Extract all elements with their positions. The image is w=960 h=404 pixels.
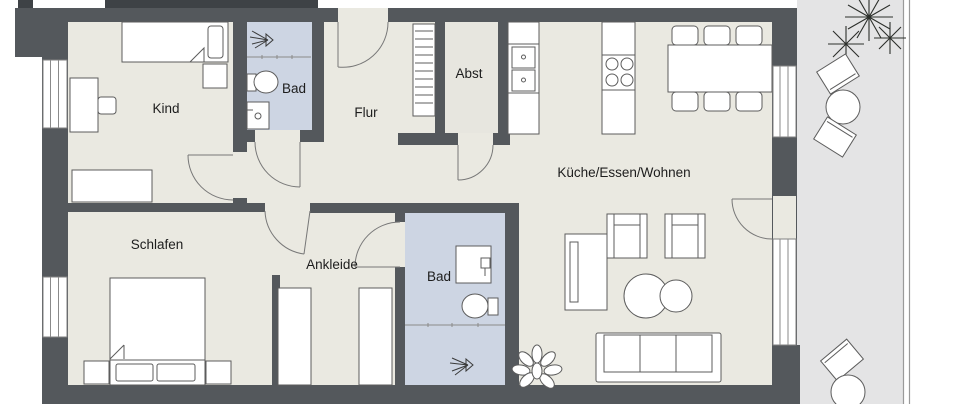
label-bad-top: Bad bbox=[282, 81, 306, 96]
armchair bbox=[607, 214, 647, 258]
toilet-tank bbox=[488, 298, 498, 315]
wall-hall-bad bbox=[310, 203, 519, 213]
terrace-table bbox=[831, 375, 865, 404]
label-ankleide: Ankleide bbox=[306, 257, 358, 272]
terrace-door-opening bbox=[773, 196, 796, 239]
wall-bad-bottom bbox=[233, 130, 255, 142]
wall-ankleide-bad bbox=[395, 213, 405, 222]
dining-chair bbox=[672, 92, 698, 111]
wall-abst-left bbox=[435, 22, 445, 133]
wall-kind-bad bbox=[233, 22, 247, 142]
coffee-table bbox=[660, 280, 692, 312]
neighbor-wall-stub bbox=[18, 0, 33, 8]
left-wall-step bbox=[15, 8, 42, 57]
wardrobe bbox=[359, 288, 392, 385]
wardrobe-shelf bbox=[413, 24, 435, 116]
label-bad-bottom: Bad bbox=[427, 269, 451, 284]
dining-set bbox=[668, 26, 772, 111]
bottom-wall bbox=[42, 385, 800, 404]
floor-plan: Kind Bad Flur Abst Küche/Essen/Wohnen Sc… bbox=[0, 0, 960, 404]
kind-bed-pillow bbox=[208, 26, 223, 58]
washbasin bbox=[456, 246, 491, 283]
wall-hall-bedrooms bbox=[68, 203, 265, 212]
neighbor-wall-band bbox=[105, 0, 318, 8]
label-schlafen: Schlafen bbox=[131, 237, 184, 252]
dining-chair bbox=[704, 26, 730, 45]
armchair bbox=[665, 214, 705, 258]
window-essen bbox=[773, 66, 796, 137]
bed-pillow bbox=[116, 364, 153, 381]
bed-pillow bbox=[157, 364, 195, 381]
window-kind bbox=[43, 60, 67, 128]
entrance-door-opening bbox=[338, 8, 388, 22]
toilet-icon bbox=[462, 294, 488, 318]
wall-ankleide-bad bbox=[395, 267, 405, 385]
label-wohnen: Küche/Essen/Wohnen bbox=[557, 165, 690, 180]
label-kind: Kind bbox=[152, 101, 179, 116]
wall-abst-bottom bbox=[493, 133, 510, 145]
kind-desk-chair bbox=[98, 97, 116, 114]
dining-chair bbox=[672, 26, 698, 45]
wall-kind-flur bbox=[233, 142, 247, 152]
nightstand bbox=[206, 361, 231, 384]
wall-bad-wohnen bbox=[505, 213, 519, 385]
washbasin bbox=[247, 102, 269, 129]
wall-bad-flur bbox=[312, 22, 324, 142]
nightstand bbox=[84, 361, 109, 384]
dining-chair bbox=[736, 92, 762, 111]
tv-icon bbox=[570, 242, 578, 302]
label-flur: Flur bbox=[354, 105, 378, 120]
toilet-icon bbox=[254, 71, 278, 93]
wall-bad-bottom bbox=[300, 130, 324, 142]
dining-chair bbox=[736, 26, 762, 45]
wall-abst-bottom bbox=[398, 133, 458, 145]
flur-furniture bbox=[413, 24, 435, 116]
kind-desk bbox=[70, 78, 98, 132]
label-abst: Abst bbox=[455, 66, 482, 81]
kind-nightstand bbox=[203, 64, 227, 88]
dining-table bbox=[668, 45, 772, 92]
wardrobe bbox=[278, 288, 311, 385]
window-wohnen bbox=[773, 239, 796, 345]
dining-chair bbox=[704, 92, 730, 111]
right-wall-corner bbox=[772, 345, 800, 404]
sofa bbox=[596, 333, 721, 382]
kitchen-island bbox=[602, 22, 635, 134]
window-schlafen bbox=[43, 277, 67, 337]
terrace bbox=[797, 0, 910, 404]
top-wall bbox=[388, 8, 790, 22]
kind-dresser bbox=[72, 170, 152, 202]
